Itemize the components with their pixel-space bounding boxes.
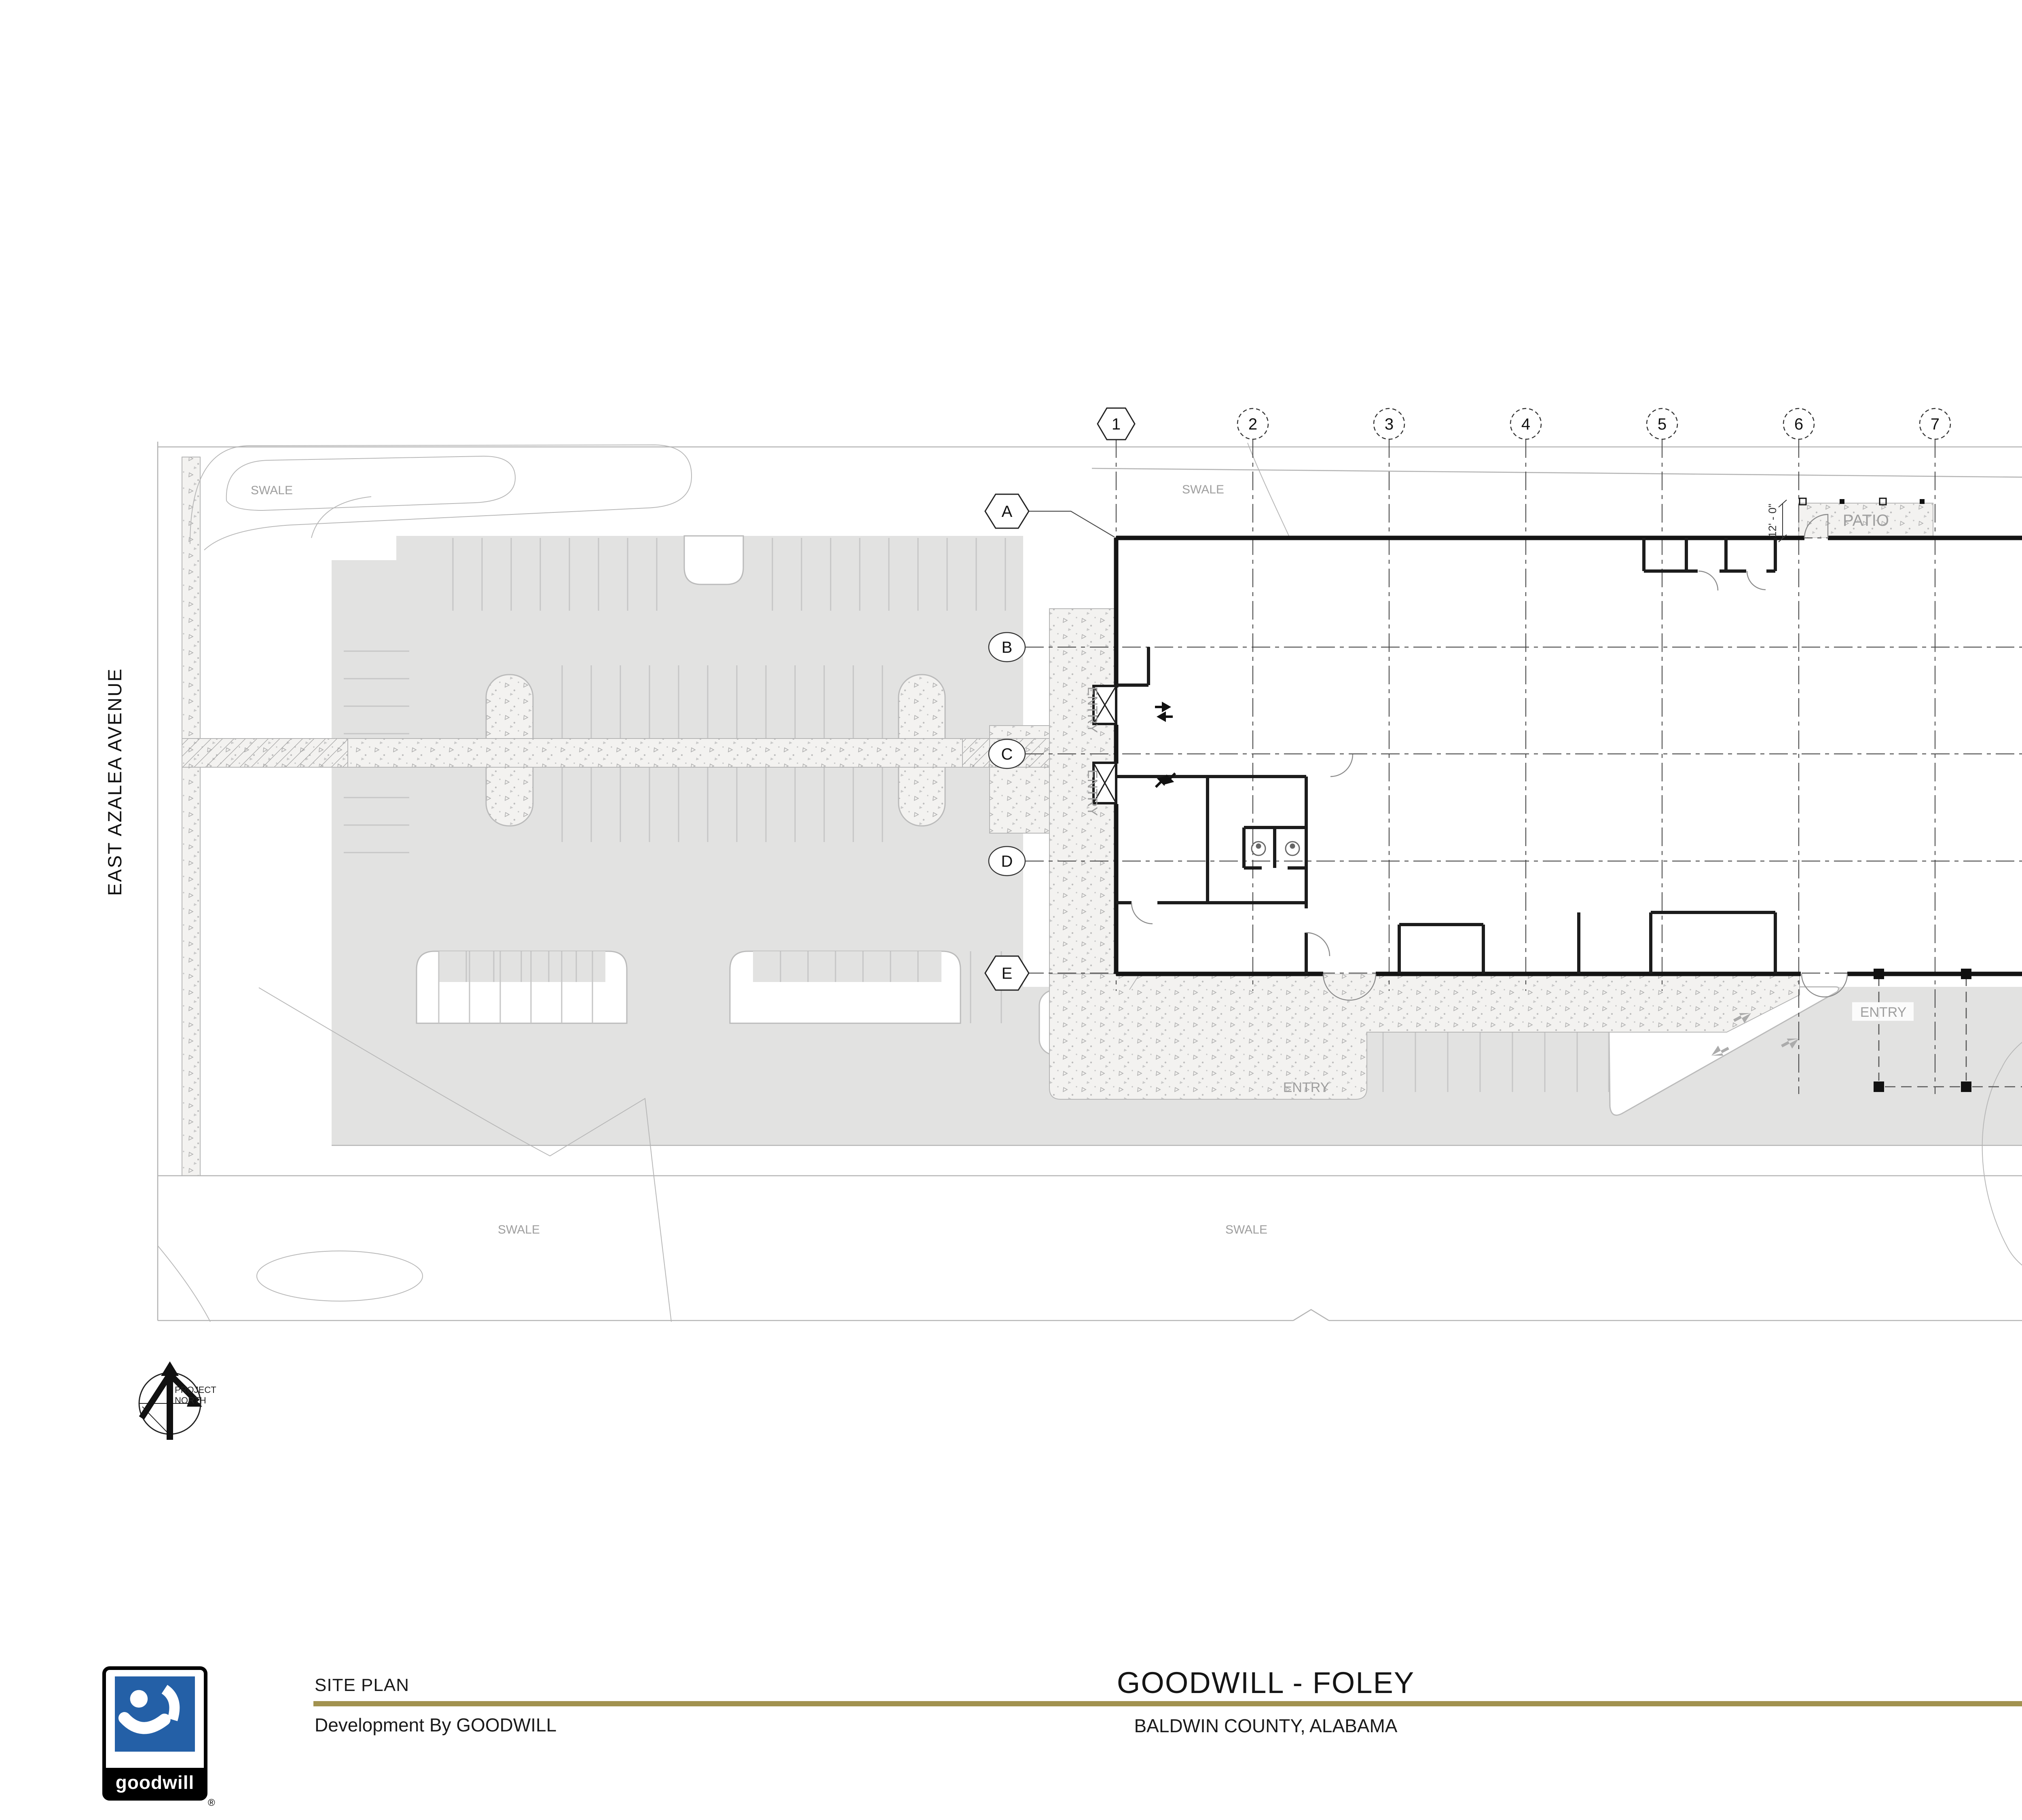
grid-bubble-row-b: B: [989, 633, 1025, 662]
goodwill-logo: goodwill: [102, 1666, 207, 1801]
svg-text:B: B: [1002, 639, 1013, 656]
patio-dim-label: 12' - 0": [1766, 504, 1779, 538]
swale-label: SWALE: [251, 484, 293, 497]
svg-text:2: 2: [1248, 415, 1257, 433]
site-plan-drawing: SWALE SWALE SWALE SWALE SWALE SWALE PATI…: [0, 0, 2022, 1820]
sheet-title: SITE PLAN: [315, 1675, 409, 1695]
grid-bubble-col-7: 7: [1920, 408, 1950, 439]
titleblock-divider: [313, 1701, 2022, 1706]
swale-label: SWALE: [1225, 1223, 1267, 1236]
grid-bubble-col-5: 5: [1647, 408, 1677, 439]
svg-text:C: C: [1001, 745, 1013, 763]
patio-label: PATIO: [1843, 512, 1889, 529]
svg-text:3: 3: [1385, 415, 1394, 433]
grid-bubble-row-c: C: [989, 739, 1025, 768]
entry-label: ENTRY: [1085, 770, 1100, 816]
street-name-label: EAST AZALEA AVENUE: [104, 668, 125, 896]
goodwill-smile-icon: [115, 1676, 195, 1752]
registered-mark: ®: [208, 1797, 215, 1809]
svg-text:A: A: [1002, 503, 1013, 521]
entry-label: ENTRY: [1085, 687, 1100, 733]
svg-text:6: 6: [1794, 415, 1803, 433]
grid-bubble-row-a: A: [985, 494, 1029, 528]
grid-a-leader: [1026, 511, 1115, 537]
project-location: BALDWIN COUNTY, ALABAMA: [942, 1715, 1589, 1737]
svg-text:D: D: [1001, 853, 1013, 870]
issue-date: July 19, 2023: [1967, 1677, 2022, 1699]
grid-bubble-col-4: 4: [1510, 408, 1541, 439]
patio-dimension: [1779, 500, 1787, 542]
entry-label: ENTRY: [1283, 1080, 1330, 1095]
entry-label: ENTRY: [1860, 1005, 1907, 1020]
svg-text:7: 7: [1931, 415, 1940, 433]
project-title: GOODWILL - FOLEY: [942, 1666, 1589, 1700]
svg-text:4: 4: [1521, 415, 1530, 433]
building-footprint: [1116, 538, 2022, 974]
grid-bubble-col-3: 3: [1374, 408, 1404, 439]
svg-text:1: 1: [1112, 415, 1121, 433]
island-top-notch: [684, 536, 743, 584]
grid-bubble-row-d: D: [989, 847, 1025, 876]
grid-bubble-col-1: 1: [1098, 408, 1135, 440]
grid-bubble-col-6: 6: [1783, 408, 1814, 439]
north-arrow: PROJECT NORTH: [139, 1361, 216, 1440]
goodwill-wordmark: goodwill: [116, 1771, 195, 1793]
site-plan-sheet: SWALE SWALE SWALE SWALE SWALE SWALE PATI…: [0, 0, 2022, 1820]
project-north-label: NORTH: [175, 1395, 206, 1405]
project-north-label: PROJECT: [175, 1385, 216, 1395]
swale-label: SWALE: [1182, 483, 1224, 496]
sheet-subtitle: Development By GOODWILL: [315, 1714, 556, 1736]
svg-text:E: E: [1002, 965, 1013, 982]
svg-text:5: 5: [1658, 415, 1667, 433]
grid-bubble-col-2: 2: [1237, 408, 1268, 439]
project-number: 2023231.00: [1967, 1715, 2022, 1737]
swale-label: SWALE: [498, 1223, 540, 1236]
